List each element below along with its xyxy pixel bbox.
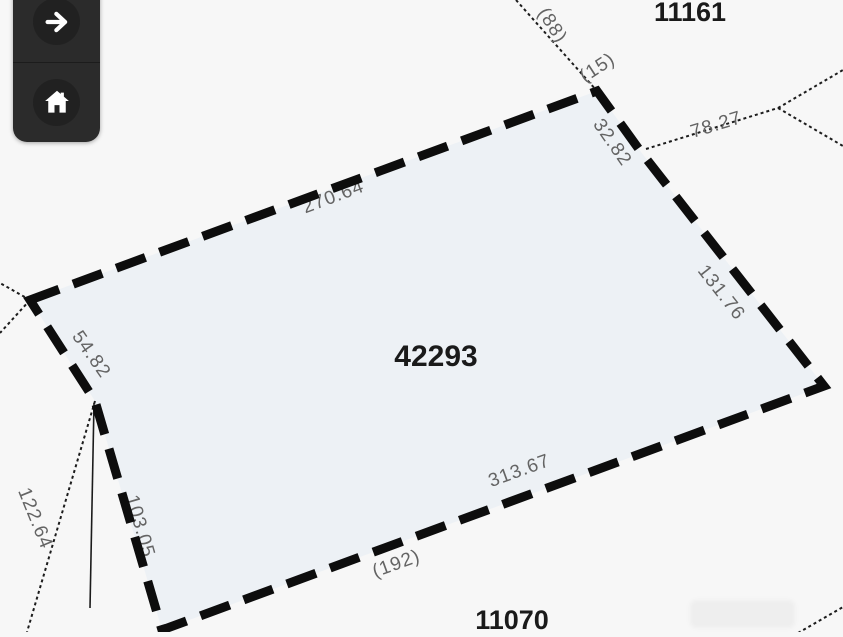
- boundary-line-southeast: [798, 607, 843, 632]
- parcel-number-top: 11161: [654, 0, 726, 27]
- home-button[interactable]: [13, 62, 100, 143]
- map-toolbar: [13, 0, 100, 142]
- reference-label-15: (15): [576, 49, 619, 87]
- forward-button[interactable]: [13, 0, 100, 62]
- map-canvas: 270.64 32.82 78.27 131.76 313.67 54.82 1…: [0, 0, 843, 632]
- parcel-number-bottom: 11070: [475, 605, 549, 632]
- boundary-line-east: [778, 108, 843, 146]
- watermark: [690, 600, 795, 628]
- boundary-stub-lower-west: [0, 300, 30, 333]
- boundary-line-northeast: [778, 70, 843, 108]
- survey-line-vertical: [90, 403, 94, 608]
- parcel-number-selected: 42293: [394, 340, 477, 373]
- dimension-label-road: 78.27: [688, 107, 744, 142]
- arrow-right-icon: [33, 0, 80, 45]
- parcel-map[interactable]: 270.64 32.82 78.27 131.76 313.67 54.82 1…: [0, 0, 843, 632]
- home-icon: [33, 79, 80, 126]
- dimension-label-adjacent: 122.64: [13, 485, 56, 552]
- reference-label-88: (88): [533, 4, 571, 47]
